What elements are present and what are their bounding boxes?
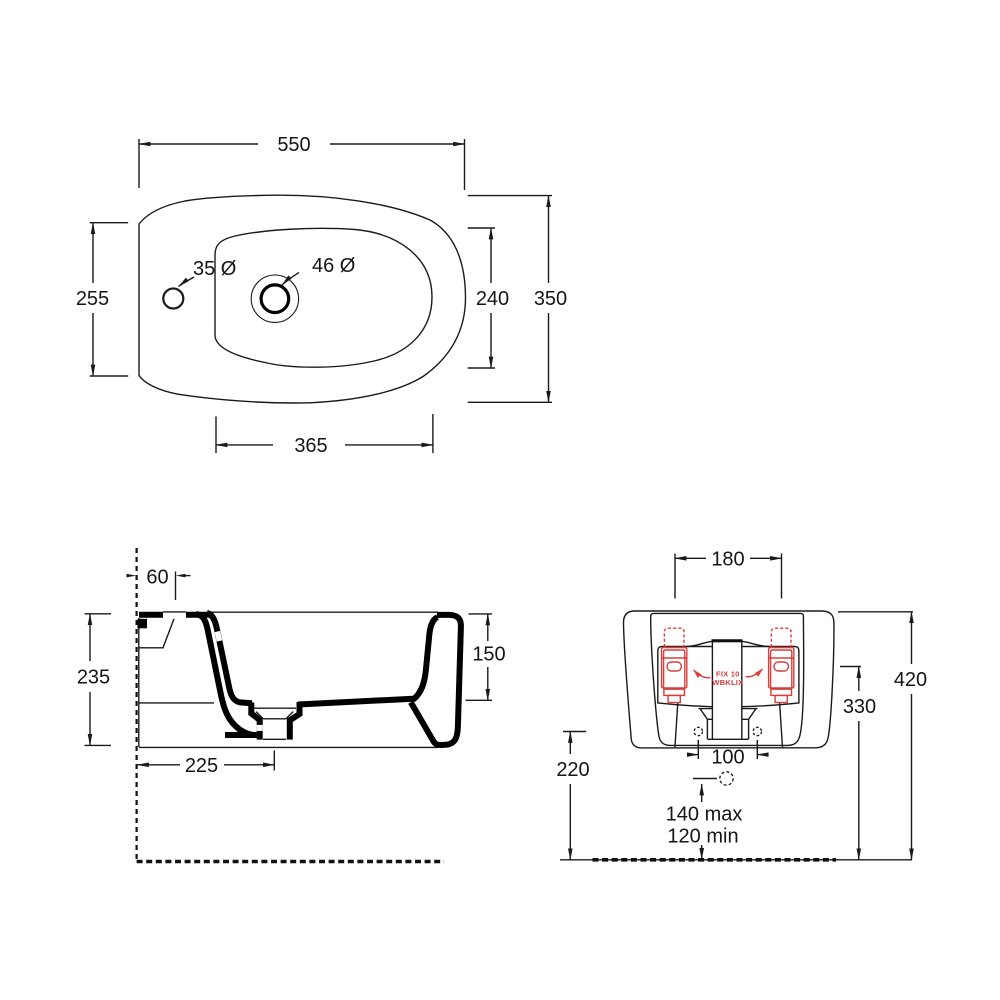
svg-text:140 max: 140 max — [666, 804, 743, 826]
svg-text:365: 365 — [294, 435, 327, 457]
svg-text:180: 180 — [711, 549, 744, 571]
svg-text:60: 60 — [146, 567, 168, 589]
svg-text:220: 220 — [556, 759, 589, 781]
svg-text:120 min: 120 min — [667, 826, 738, 848]
svg-text:550: 550 — [277, 134, 310, 156]
svg-text:150: 150 — [472, 644, 505, 666]
svg-text:46 Ø: 46 Ø — [312, 255, 355, 277]
svg-text:330: 330 — [843, 696, 876, 718]
svg-text:225: 225 — [185, 755, 218, 777]
svg-text:WBKLIX: WBKLIX — [712, 678, 743, 687]
svg-text:235: 235 — [77, 667, 110, 689]
svg-text:240: 240 — [476, 288, 509, 310]
svg-text:255: 255 — [76, 288, 109, 310]
svg-text:FIX 10: FIX 10 — [716, 669, 740, 678]
svg-text:420: 420 — [894, 669, 927, 691]
svg-text:350: 350 — [534, 288, 567, 310]
svg-text:35 Ø: 35 Ø — [193, 258, 236, 280]
svg-text:100: 100 — [711, 747, 744, 769]
